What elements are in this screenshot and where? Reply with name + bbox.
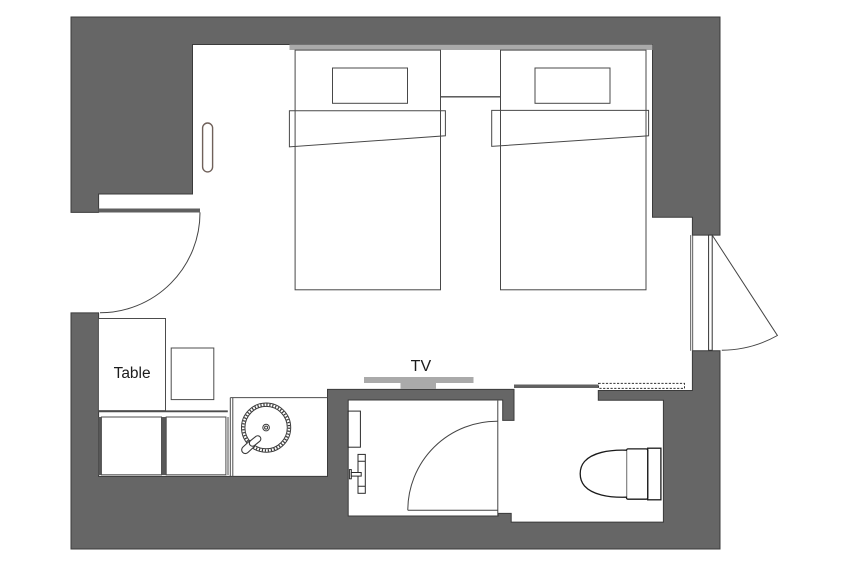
- svg-text:TV: TV: [411, 358, 432, 375]
- svg-text:Table: Table: [114, 365, 151, 382]
